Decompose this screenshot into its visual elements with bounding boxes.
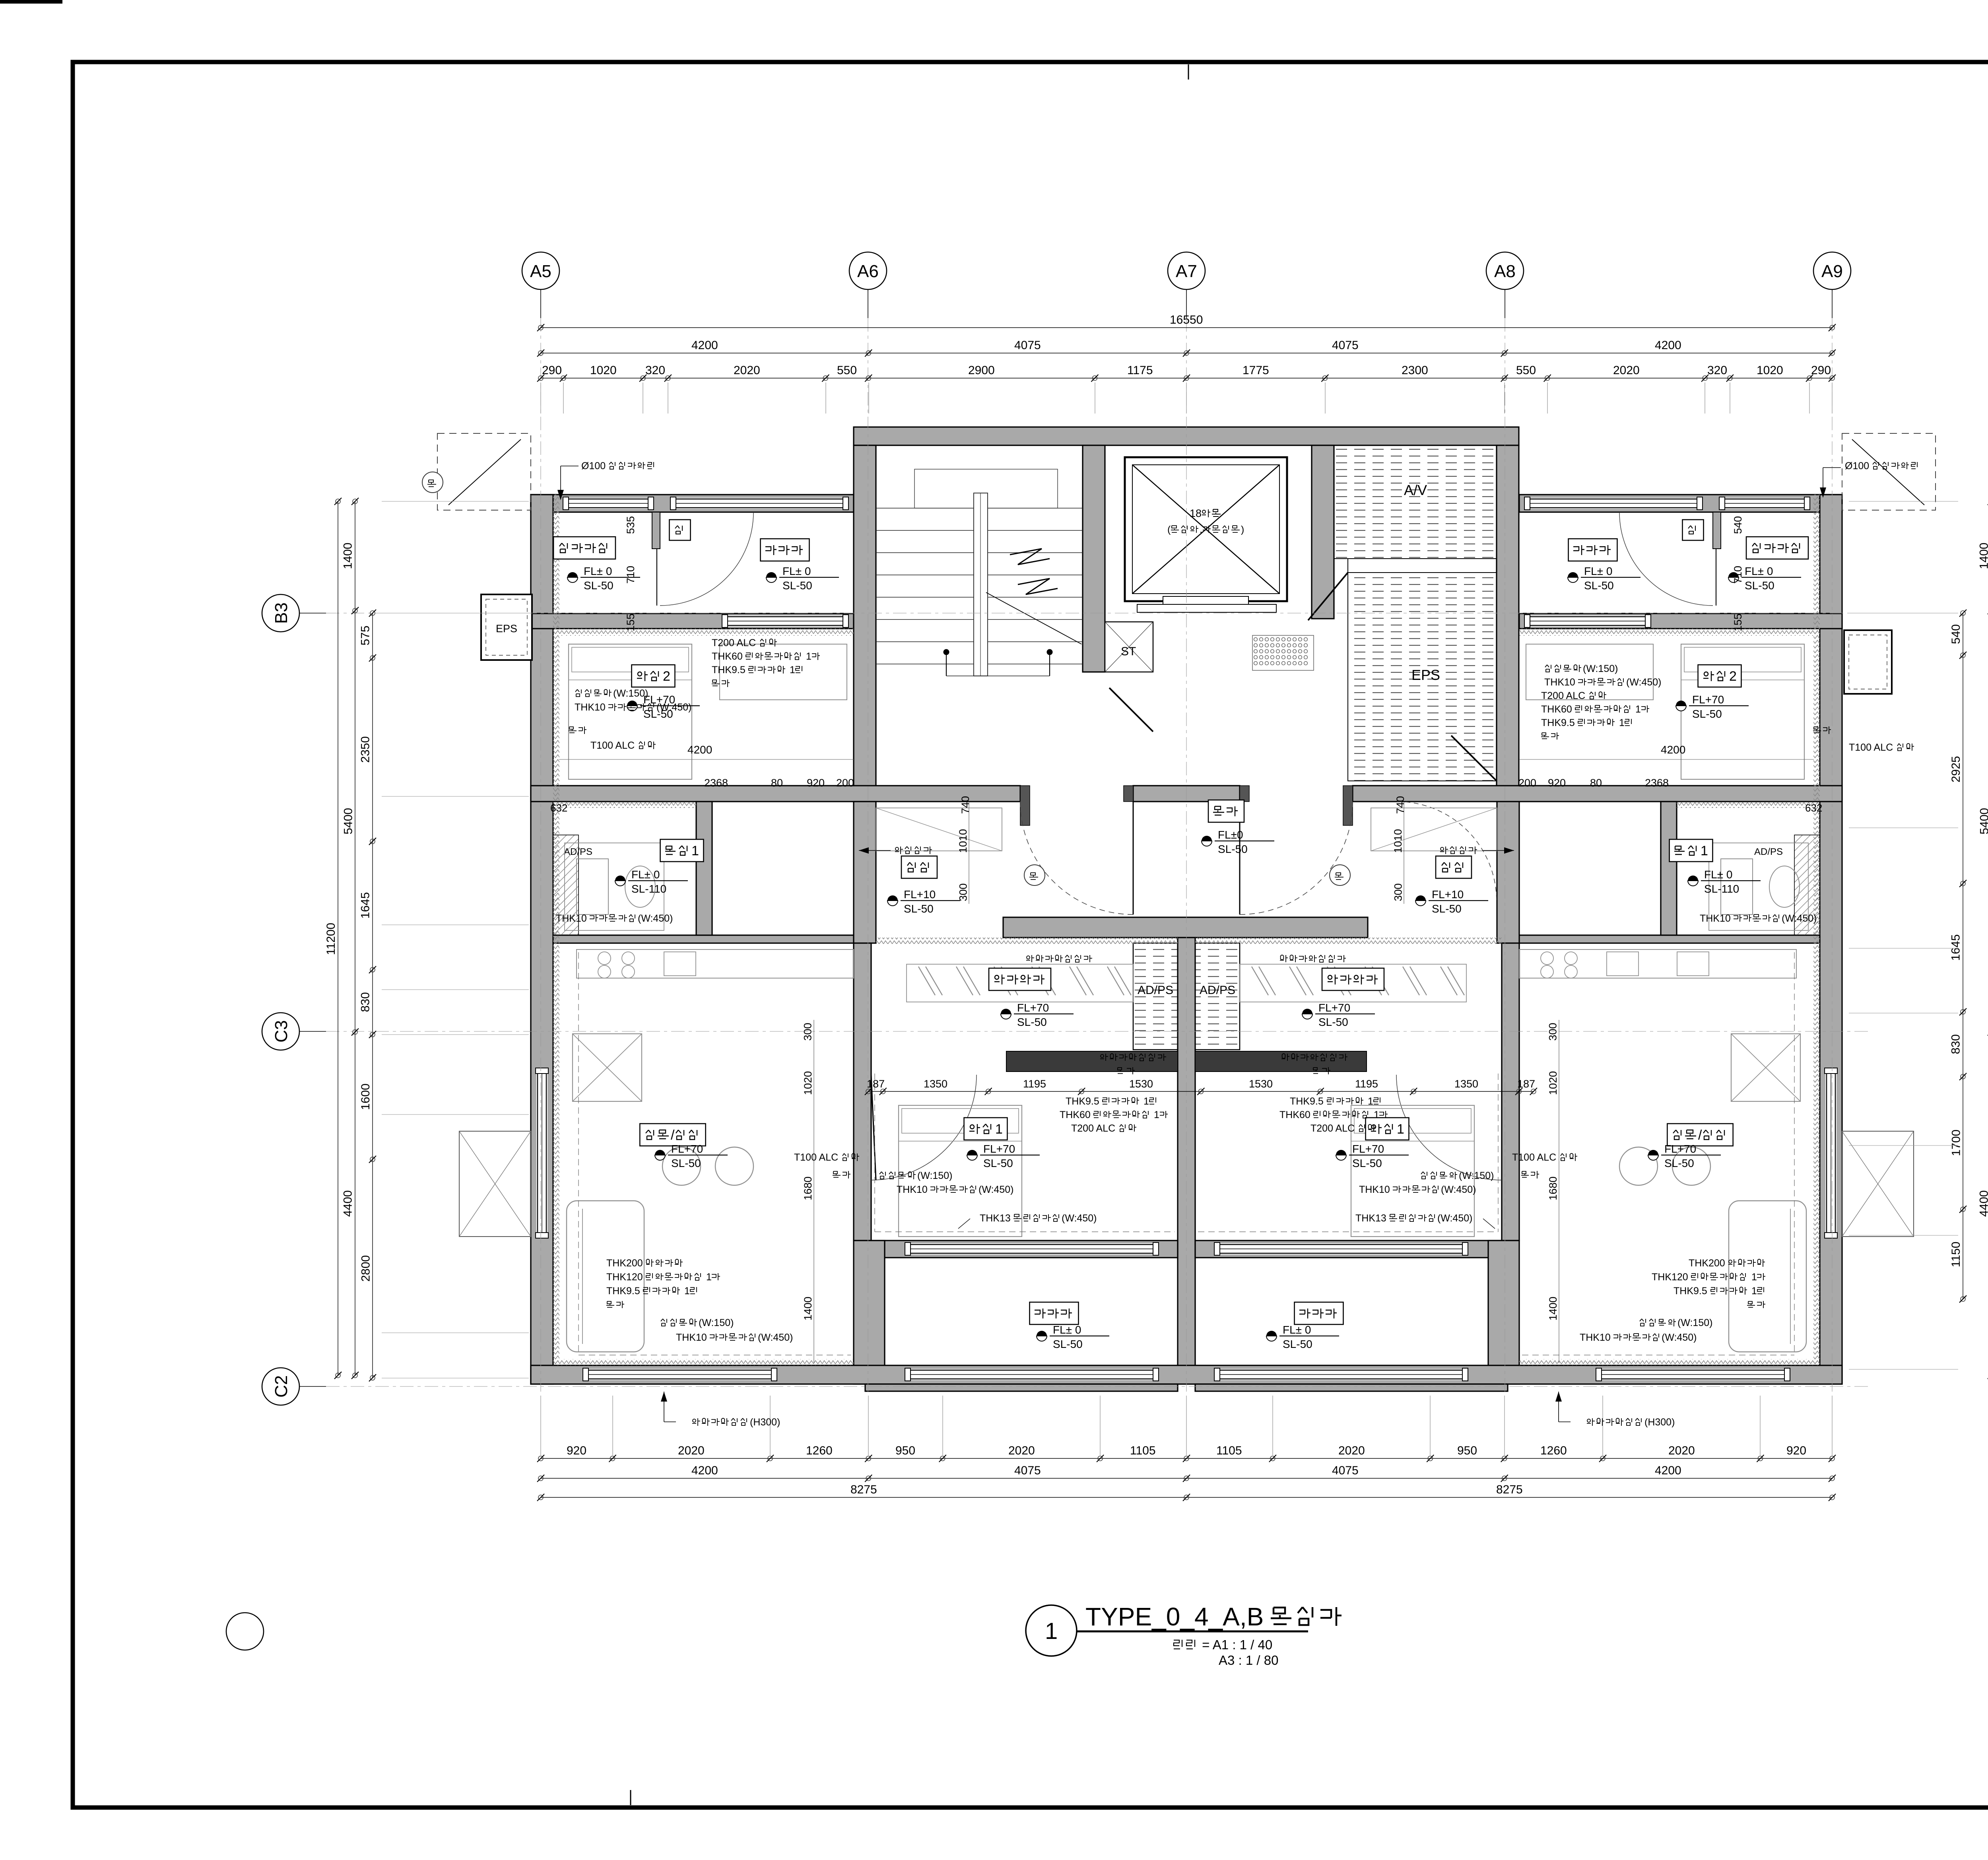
svg-text:1: 1 (1749, 1272, 1757, 1283)
svg-text:SL-50: SL-50 (1584, 579, 1614, 592)
svg-text:290: 290 (542, 364, 562, 377)
svg-text:(W:150): (W:150) (917, 1170, 952, 1181)
svg-text:2020: 2020 (1008, 1444, 1035, 1457)
svg-text:710: 710 (1732, 566, 1744, 584)
svg-text:2020: 2020 (1613, 364, 1640, 377)
svg-text:THK120: THK120 (1652, 1272, 1691, 1283)
svg-text:A7: A7 (1176, 262, 1197, 281)
svg-text:/: / (671, 1128, 675, 1143)
svg-text:300: 300 (1547, 1023, 1559, 1041)
svg-text:SL-50: SL-50 (1218, 843, 1248, 855)
svg-text:155: 155 (625, 614, 637, 631)
svg-text:SL-50: SL-50 (1432, 903, 1462, 915)
svg-text:1020: 1020 (590, 364, 617, 377)
svg-text:1: 1 (1397, 1122, 1404, 1137)
svg-text:(W:450): (W:450) (638, 913, 673, 924)
svg-text:THK10: THK10 (1580, 1332, 1613, 1343)
svg-text:THK10: THK10 (575, 702, 608, 713)
svg-text:THK13: THK13 (980, 1213, 1013, 1224)
svg-text:5400: 5400 (342, 808, 355, 835)
svg-text:2900: 2900 (968, 364, 995, 377)
svg-text:(W:150): (W:150) (1459, 1170, 1494, 1181)
svg-text:FL+70: FL+70 (1017, 1002, 1049, 1014)
svg-text:1530: 1530 (1249, 1078, 1273, 1090)
svg-text:1680: 1680 (1547, 1177, 1559, 1200)
svg-text:SL-50: SL-50 (671, 1157, 701, 1169)
svg-text:1: 1 (1616, 717, 1625, 728)
svg-text:Ø100: Ø100 (581, 460, 608, 472)
svg-text:1: 1 (1371, 1109, 1379, 1120)
svg-text:SL-50: SL-50 (1745, 579, 1774, 592)
svg-text:830: 830 (359, 992, 372, 1012)
svg-text:1175: 1175 (1127, 364, 1153, 377)
svg-text:950: 950 (1457, 1444, 1477, 1457)
svg-text:300: 300 (1392, 883, 1404, 901)
svg-text:FL+70: FL+70 (1318, 1002, 1350, 1014)
svg-text:2350: 2350 (359, 736, 372, 763)
svg-text:THK9.5: THK9.5 (712, 664, 748, 676)
svg-text:SL-50: SL-50 (983, 1157, 1013, 1169)
svg-text:1: 1 (787, 664, 795, 676)
svg-text:SL-110: SL-110 (1704, 883, 1739, 895)
svg-text:950: 950 (895, 1444, 915, 1457)
svg-text:FL+70: FL+70 (671, 1143, 703, 1155)
svg-text:4400: 4400 (342, 1190, 355, 1217)
svg-text:8275: 8275 (850, 1483, 877, 1496)
svg-text:SL-50: SL-50 (1692, 708, 1722, 720)
svg-text:(W:450): (W:450) (758, 1332, 793, 1343)
svg-text:SL-50: SL-50 (782, 579, 812, 592)
svg-text:): ) (1241, 524, 1244, 535)
svg-text:1: 1 (1701, 843, 1708, 858)
svg-text:THK10: THK10 (897, 1184, 930, 1195)
svg-text:18: 18 (1190, 507, 1202, 519)
svg-text:FL+10: FL+10 (1432, 888, 1464, 901)
svg-text:(W:450): (W:450) (1437, 1213, 1472, 1224)
svg-text:THK60: THK60 (1060, 1109, 1093, 1120)
svg-text:1600: 1600 (359, 1083, 372, 1110)
svg-text:(W:150): (W:150) (1583, 663, 1618, 674)
svg-text:80: 80 (771, 777, 783, 789)
svg-text:11200: 11200 (324, 923, 338, 955)
svg-text:920: 920 (567, 1444, 586, 1457)
svg-text:FL± 0: FL± 0 (584, 565, 612, 577)
svg-text:(W:450): (W:450) (656, 702, 691, 713)
svg-text:A5: A5 (530, 262, 551, 281)
svg-text:4200: 4200 (1655, 1464, 1681, 1477)
svg-text:SL-50: SL-50 (904, 903, 934, 915)
svg-text:4075: 4075 (1332, 1464, 1359, 1477)
svg-text:4075: 4075 (1014, 339, 1041, 352)
svg-text:THK200: THK200 (1689, 1258, 1728, 1269)
svg-text:FL+70: FL+70 (1692, 693, 1724, 706)
svg-text:740: 740 (1394, 796, 1406, 814)
svg-text:550: 550 (1516, 364, 1536, 377)
svg-text:1: 1 (703, 1272, 712, 1283)
svg-text:(W:450): (W:450) (1441, 1184, 1476, 1195)
svg-text:FL± 0: FL± 0 (782, 565, 811, 577)
svg-text:290: 290 (1811, 364, 1831, 377)
svg-text:(: ( (1167, 524, 1171, 535)
svg-text:1105: 1105 (1216, 1444, 1242, 1457)
svg-text:THK10: THK10 (1544, 677, 1578, 688)
svg-text:AD/PS: AD/PS (1138, 984, 1173, 997)
svg-text:540: 540 (1732, 516, 1744, 534)
svg-text:(W:150): (W:150) (699, 1317, 734, 1328)
svg-text:2800: 2800 (359, 1255, 372, 1282)
svg-text:A8: A8 (1494, 262, 1516, 281)
svg-text:2368: 2368 (1645, 777, 1669, 789)
svg-text:16550: 16550 (1170, 313, 1203, 326)
svg-text:1020: 1020 (802, 1071, 814, 1095)
svg-text:200: 200 (836, 777, 854, 789)
svg-text:T100 ALC: T100 ALC (1849, 742, 1896, 753)
svg-text:THK9.5: THK9.5 (1541, 717, 1578, 728)
svg-text:80: 80 (1590, 777, 1602, 789)
svg-text:SL-110: SL-110 (631, 883, 666, 895)
svg-text:THK13: THK13 (1355, 1213, 1389, 1224)
svg-text:1400: 1400 (1978, 543, 1988, 569)
svg-text:540: 540 (1949, 624, 1963, 644)
svg-text:ST: ST (1121, 645, 1136, 658)
svg-text:(W:450): (W:450) (978, 1184, 1013, 1195)
svg-text:1: 1 (1365, 1096, 1373, 1107)
svg-text:(H300): (H300) (1644, 1417, 1675, 1428)
svg-text:C3: C3 (272, 1020, 291, 1043)
svg-text:1195: 1195 (1023, 1078, 1046, 1090)
svg-text:1150: 1150 (1949, 1242, 1963, 1268)
svg-text:4200: 4200 (691, 339, 718, 352)
svg-text:SL-50: SL-50 (1283, 1338, 1312, 1350)
svg-text:T100 ALC: T100 ALC (794, 1152, 841, 1163)
svg-text:1400: 1400 (802, 1297, 814, 1320)
svg-text:2: 2 (1729, 669, 1737, 684)
svg-text:T200 ALC: T200 ALC (1541, 690, 1588, 701)
svg-text:1350: 1350 (924, 1078, 947, 1090)
svg-text:SL-50: SL-50 (584, 579, 613, 592)
svg-text:2: 2 (663, 669, 670, 684)
svg-text:FL+70: FL+70 (1352, 1143, 1384, 1155)
svg-text:THK9.5: THK9.5 (606, 1285, 643, 1297)
svg-text:THK10: THK10 (1700, 913, 1734, 924)
svg-text:1260: 1260 (806, 1444, 833, 1457)
svg-text:920: 920 (1786, 1444, 1806, 1457)
svg-text:575: 575 (359, 625, 372, 645)
svg-text:4075: 4075 (1332, 339, 1359, 352)
svg-text:1195: 1195 (1355, 1078, 1378, 1090)
svg-text:1: 1 (691, 843, 699, 858)
svg-text:TYPE_0_4_A,B: TYPE_0_4_A,B (1085, 1602, 1271, 1631)
svg-text:4200: 4200 (1661, 744, 1685, 756)
svg-text:AD/PS: AD/PS (1200, 984, 1235, 997)
svg-text:1: 1 (681, 1285, 690, 1297)
svg-text:THK9.5: THK9.5 (1066, 1096, 1102, 1107)
svg-text:5400: 5400 (1978, 808, 1988, 835)
svg-text:/: / (1698, 1128, 1702, 1143)
svg-text:710: 710 (625, 566, 637, 584)
svg-text:1020: 1020 (1547, 1071, 1559, 1095)
svg-text:320: 320 (645, 364, 665, 377)
svg-text:2925: 2925 (1949, 756, 1963, 782)
svg-text:1: 1 (803, 651, 812, 662)
svg-text:FL± 0: FL± 0 (1745, 565, 1773, 577)
svg-text:1645: 1645 (359, 892, 372, 919)
svg-text:1: 1 (1633, 704, 1641, 715)
svg-text:1530: 1530 (1129, 1078, 1153, 1090)
svg-text:200: 200 (1518, 777, 1536, 789)
svg-text:632: 632 (1805, 802, 1822, 814)
svg-text:THK120: THK120 (606, 1272, 646, 1283)
svg-text:A/V: A/V (1404, 482, 1427, 498)
svg-text:THK60: THK60 (1541, 704, 1575, 715)
svg-text:T200 ALC: T200 ALC (1071, 1123, 1118, 1134)
svg-text:1: 1 (1151, 1109, 1159, 1120)
svg-text:1700: 1700 (1949, 1130, 1963, 1156)
svg-text:SL-50: SL-50 (1318, 1016, 1348, 1028)
svg-text:2368: 2368 (704, 777, 728, 789)
svg-text:1680: 1680 (802, 1177, 814, 1200)
svg-text:THK9.5: THK9.5 (1290, 1096, 1326, 1107)
svg-text:B3: B3 (272, 602, 291, 624)
svg-text:AD/PS: AD/PS (564, 847, 592, 857)
svg-text:4200: 4200 (691, 1464, 718, 1477)
svg-text:830: 830 (1949, 1034, 1963, 1054)
svg-text:FL± 0: FL± 0 (1053, 1324, 1081, 1336)
svg-text:SL-50: SL-50 (1352, 1157, 1382, 1169)
svg-text:= A1 : 1 / 40: = A1 : 1 / 40 (1198, 1637, 1272, 1652)
svg-text:C2: C2 (272, 1375, 291, 1398)
svg-text:FL± 0: FL± 0 (1704, 868, 1732, 881)
svg-text:2020: 2020 (678, 1444, 705, 1457)
svg-text:1010: 1010 (957, 829, 969, 853)
svg-text:T100 ALC: T100 ALC (590, 740, 637, 751)
svg-text:EPS: EPS (496, 623, 517, 635)
svg-text:A9: A9 (1821, 262, 1843, 281)
svg-text:(W:450): (W:450) (1626, 677, 1661, 688)
svg-text:(H300): (H300) (750, 1417, 780, 1428)
svg-text:FL±0: FL±0 (1218, 829, 1243, 841)
svg-text:FL+70: FL+70 (1664, 1143, 1696, 1155)
svg-text:SL-50: SL-50 (1017, 1016, 1047, 1028)
svg-text:THK9.5: THK9.5 (1673, 1285, 1710, 1297)
svg-text:FL± 0: FL± 0 (1283, 1324, 1311, 1336)
svg-text:4200: 4200 (1655, 339, 1681, 352)
svg-text:THK10: THK10 (1359, 1184, 1393, 1195)
svg-text:187: 187 (867, 1078, 885, 1090)
svg-text:1: 1 (995, 1122, 1003, 1137)
svg-text:FL± 0: FL± 0 (631, 868, 660, 881)
svg-text:1350: 1350 (1454, 1078, 1478, 1090)
svg-text:2020: 2020 (734, 364, 760, 377)
svg-text:THK60: THK60 (1279, 1109, 1313, 1120)
svg-text:320: 320 (1707, 364, 1727, 377)
svg-text:(W:450): (W:450) (1782, 913, 1817, 924)
svg-text:T200 ALC: T200 ALC (1310, 1123, 1357, 1134)
svg-text:300: 300 (957, 883, 969, 901)
svg-text:THK200: THK200 (606, 1258, 646, 1269)
svg-text:1: 1 (1045, 1618, 1058, 1644)
svg-text:2020: 2020 (1338, 1444, 1365, 1457)
svg-text:1020: 1020 (1757, 364, 1783, 377)
svg-text:THK60: THK60 (712, 651, 745, 662)
svg-text:1260: 1260 (1540, 1444, 1567, 1457)
svg-text:(W:150): (W:150) (1677, 1317, 1712, 1328)
svg-text:A3 : 1 / 80: A3 : 1 / 80 (1219, 1653, 1278, 1668)
svg-text:187: 187 (1517, 1078, 1535, 1090)
svg-text:550: 550 (837, 364, 857, 377)
svg-text:1775: 1775 (1242, 364, 1269, 377)
svg-text:EPS: EPS (1411, 667, 1440, 683)
svg-text:(W:450): (W:450) (1662, 1332, 1697, 1343)
svg-text:300: 300 (802, 1023, 814, 1041)
svg-text:4400: 4400 (1978, 1190, 1988, 1217)
svg-text:1400: 1400 (342, 543, 355, 569)
svg-text:(W:450): (W:450) (1062, 1213, 1097, 1224)
svg-text:(W:150): (W:150) (613, 688, 648, 699)
svg-text:FL± 0: FL± 0 (1584, 565, 1612, 577)
svg-text:FL+70: FL+70 (983, 1143, 1015, 1155)
svg-text:1645: 1645 (1949, 934, 1963, 961)
svg-text:A6: A6 (857, 262, 879, 281)
svg-text:4200: 4200 (687, 744, 712, 756)
svg-text:740: 740 (959, 796, 971, 814)
svg-text:,: , (1200, 524, 1202, 535)
svg-text:FL+10: FL+10 (904, 888, 936, 901)
svg-text:535: 535 (625, 516, 637, 534)
svg-text:1: 1 (1749, 1285, 1757, 1297)
svg-text:2300: 2300 (1402, 364, 1428, 377)
svg-text:1: 1 (1141, 1096, 1149, 1107)
svg-text:Ø100: Ø100 (1845, 460, 1872, 472)
svg-text:SL-50: SL-50 (1053, 1338, 1083, 1350)
svg-text:THK10: THK10 (676, 1332, 710, 1343)
svg-text:AD/PS: AD/PS (1754, 847, 1783, 857)
svg-text:920: 920 (807, 777, 825, 789)
svg-text:T200 ALC: T200 ALC (712, 637, 759, 648)
svg-text:155: 155 (1732, 614, 1744, 631)
svg-text:1105: 1105 (1130, 1444, 1156, 1457)
svg-text:1400: 1400 (1547, 1297, 1559, 1320)
svg-text:1010: 1010 (1392, 829, 1404, 853)
svg-text:SL-50: SL-50 (1664, 1157, 1694, 1169)
svg-text:T100 ALC: T100 ALC (1512, 1152, 1559, 1163)
svg-text:4075: 4075 (1014, 1464, 1041, 1477)
svg-text:THK10: THK10 (556, 913, 590, 924)
svg-text:632: 632 (550, 802, 567, 814)
svg-text:8275: 8275 (1496, 1483, 1523, 1496)
svg-text:920: 920 (1548, 777, 1566, 789)
svg-text:2020: 2020 (1668, 1444, 1695, 1457)
